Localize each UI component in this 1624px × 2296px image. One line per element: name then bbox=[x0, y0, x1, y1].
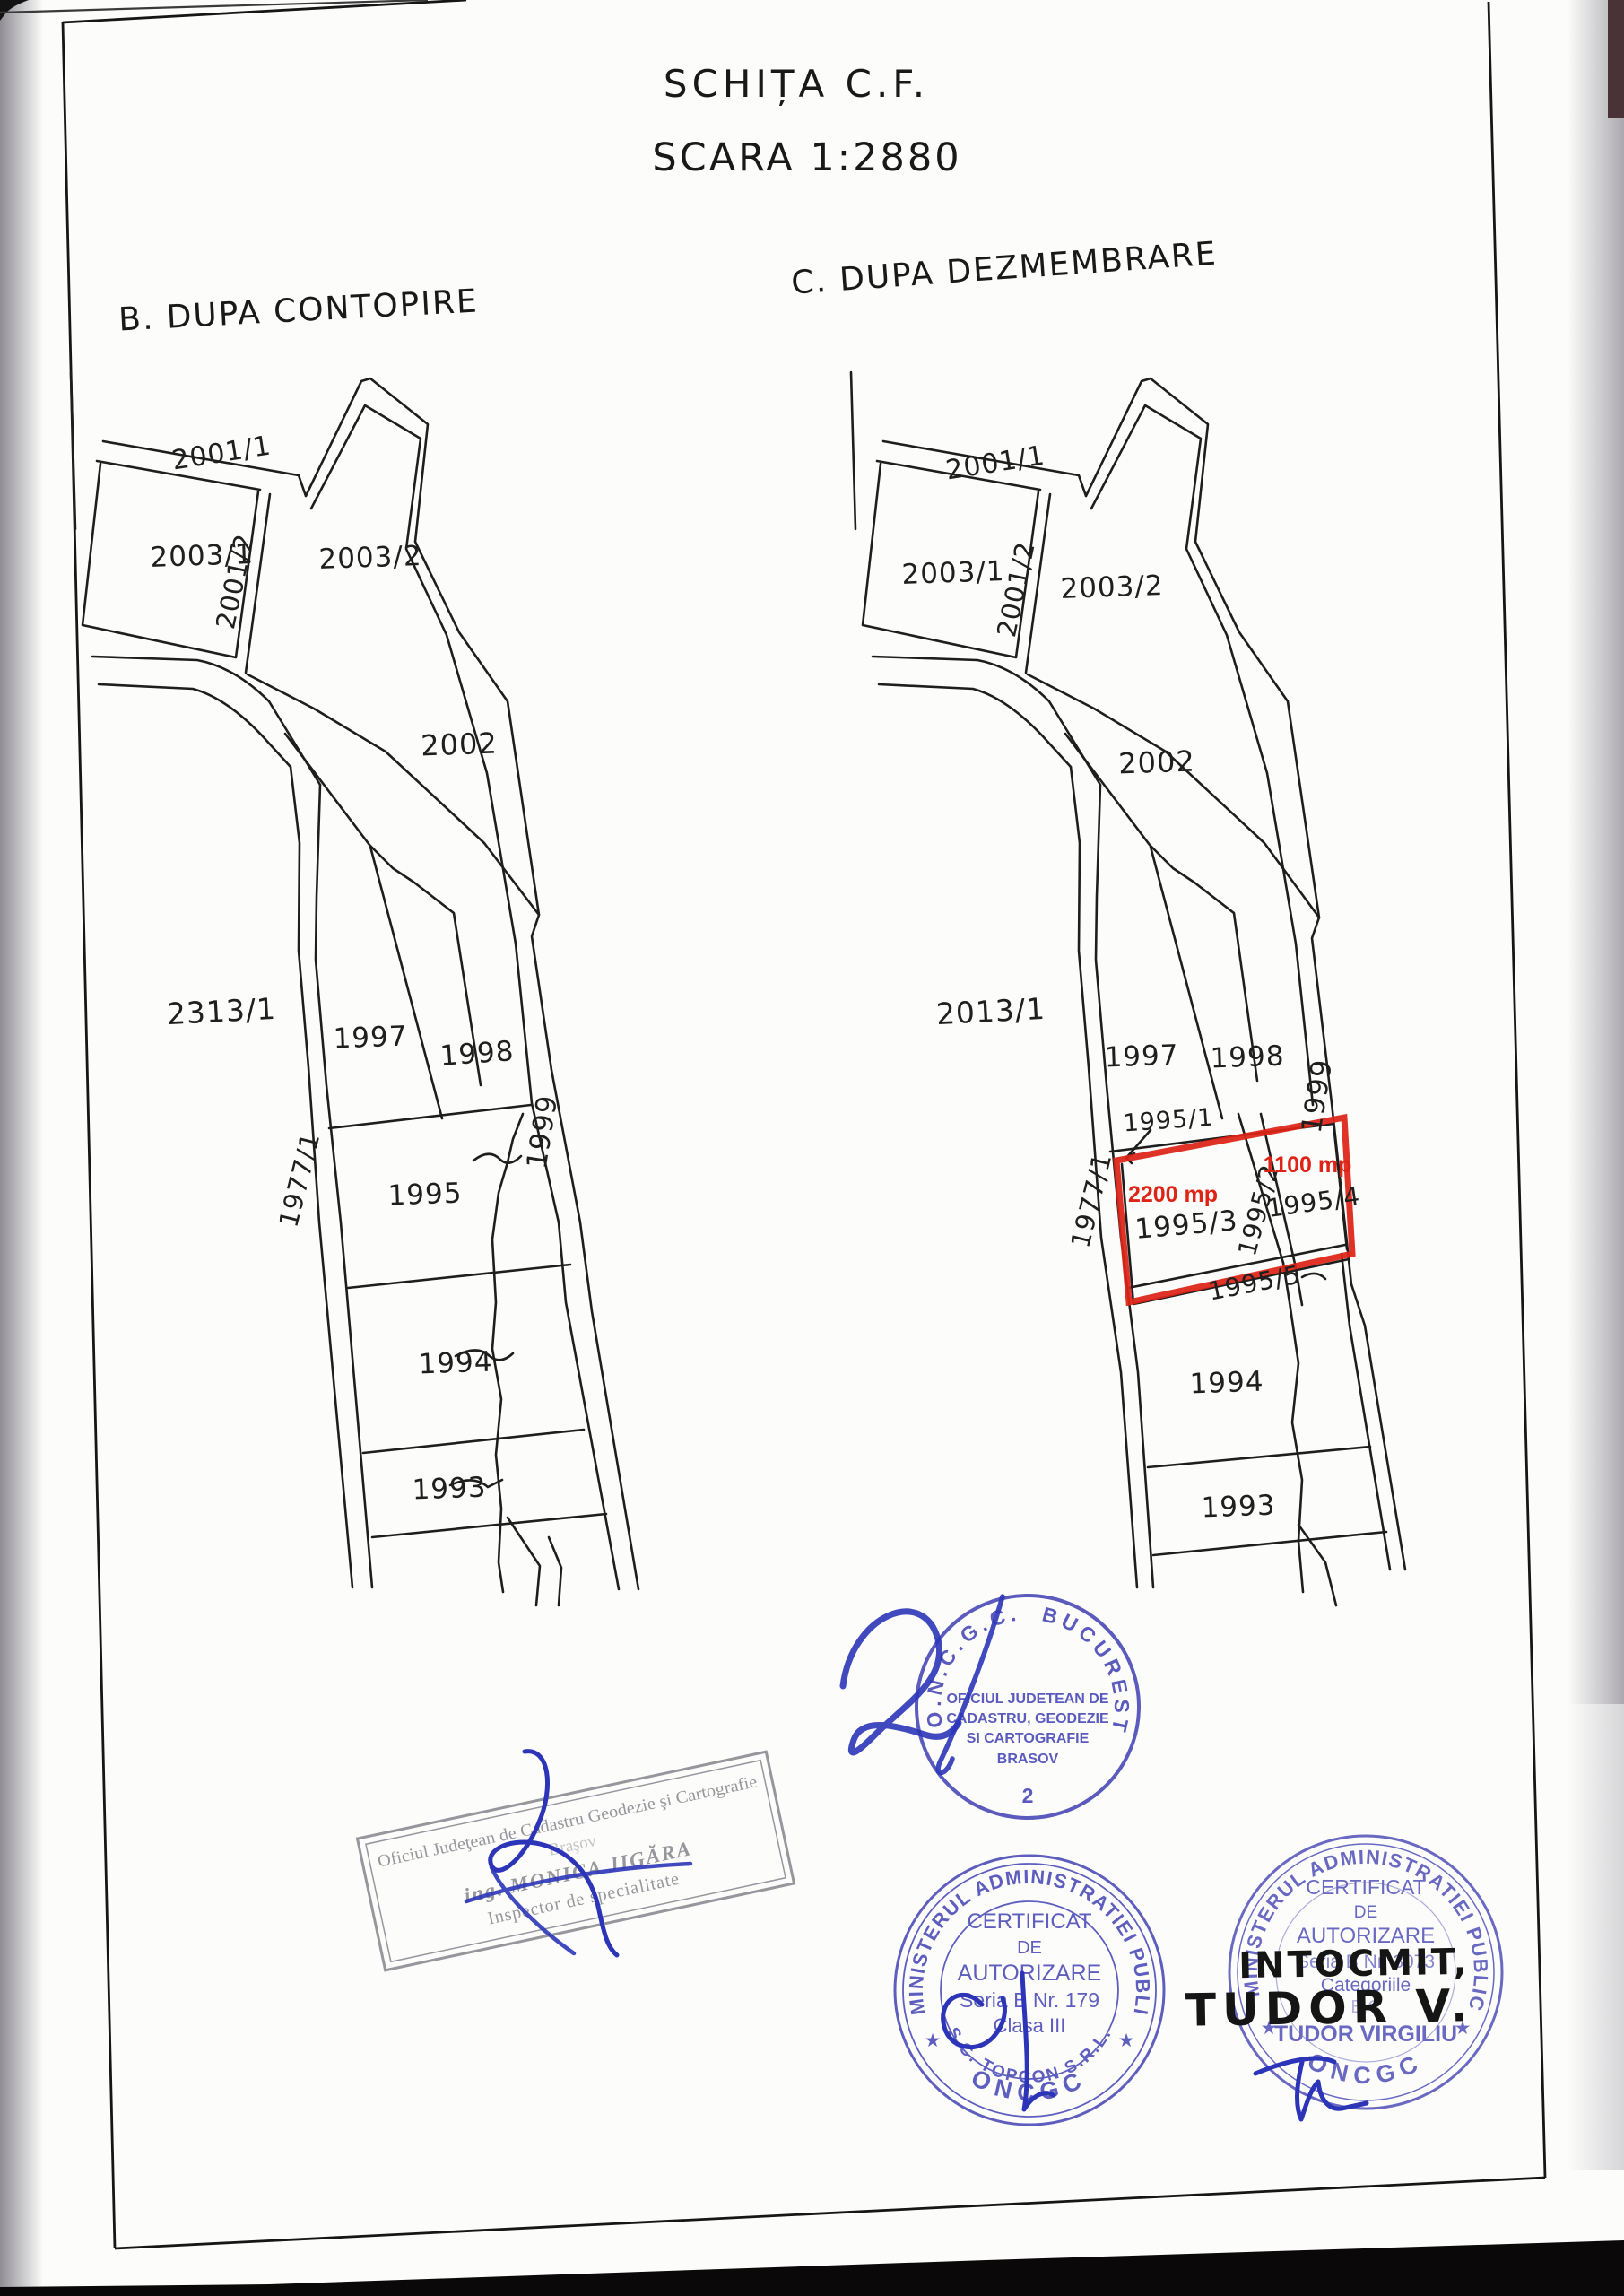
svg-text:ONCGC: ONCGC bbox=[1303, 2048, 1428, 2089]
cadastral-drawing: SCHIȚA C.F. SCARA 1:2880 B. DUPA CONTOPI… bbox=[0, 0, 1624, 2296]
parcel-label: 1994 bbox=[1189, 1366, 1264, 1401]
parcel-label: 2003/1 bbox=[901, 555, 1005, 591]
handwritten-tudor-v: TUDOR V. bbox=[1185, 1979, 1475, 2037]
stamp-number: 2 bbox=[1022, 1784, 1034, 1807]
parcel-label: 1997 bbox=[333, 1021, 408, 1056]
area-annotation-2200: 2200 mp bbox=[1128, 1182, 1218, 1207]
scan-edge-right-low bbox=[1568, 1704, 1624, 2170]
parcel-label: 1998 bbox=[1210, 1040, 1285, 1075]
area-annotation-1100: 1100 mp bbox=[1264, 1152, 1352, 1178]
parcel-label: 2313/1 bbox=[166, 991, 277, 1031]
parcel-label: 1995/1 bbox=[1123, 1104, 1215, 1138]
stamp-line: CERTIFICAT bbox=[967, 1909, 1091, 1934]
scanned-cadastral-sheet: SCHIȚA C.F. SCARA 1:2880 B. DUPA CONTOPI… bbox=[0, 0, 1624, 2296]
parcel-label: 2003/2 bbox=[1060, 570, 1164, 605]
parcel-label: 2013/1 bbox=[935, 991, 1046, 1031]
star-icon: ★ bbox=[925, 2031, 942, 2051]
parcel-label: 1998 bbox=[439, 1035, 515, 1073]
parcel-label: 1995 bbox=[387, 1178, 463, 1213]
stamp-arc-text: ONCGC bbox=[1303, 2048, 1428, 2089]
scan-edge-left bbox=[0, 0, 43, 2296]
stamp-line: DE bbox=[1017, 1938, 1042, 1958]
diagram-c-heading: C. DUPA DEZMEMBRARE bbox=[790, 235, 1219, 301]
scan-corner-dark bbox=[1608, 0, 1624, 118]
stamp-line: SI CARTOGRAFIE bbox=[967, 1731, 1090, 1746]
sheet-title: SCHIȚA C.F. bbox=[664, 62, 929, 106]
diagram-b-heading: B. DUPA CONTOPIRE bbox=[117, 283, 480, 339]
parcel-label: 1994 bbox=[418, 1346, 493, 1381]
parcel-label: 1993 bbox=[412, 1472, 487, 1507]
stamp-line: BRASOV bbox=[997, 1752, 1059, 1767]
parcel-label: 1995/3 bbox=[1133, 1205, 1239, 1246]
diagram-c-parcel-labels: 2001/1 2003/1 2001/2 2003/2 2002 2013/1 … bbox=[901, 439, 1362, 1524]
scan-edge-right bbox=[1568, 0, 1624, 1704]
stamp-line: Braşov bbox=[547, 1831, 599, 1860]
sheet-scale: SCARA 1:2880 bbox=[652, 135, 961, 180]
diagram-b-parcel-labels: 2001/1 2003/1 2001/2 2003/2 2002 2313/1 … bbox=[150, 430, 564, 1506]
stamp-line: DE bbox=[1354, 1903, 1377, 1922]
parcel-label: 2001/1 bbox=[169, 430, 274, 476]
scan-edge-bottom bbox=[0, 2240, 1624, 2296]
parcel-label: 1997 bbox=[1104, 1039, 1179, 1074]
parcel-label: 1977/1 bbox=[1064, 1150, 1117, 1251]
stamp-line: AUTORIZARE bbox=[958, 1961, 1102, 1986]
parcel-label: 2001/1 bbox=[943, 439, 1047, 486]
parcel-label: 1993 bbox=[1201, 1490, 1276, 1525]
stamp-line: CERTIFICAT bbox=[1306, 1875, 1425, 1899]
handwritten-annotation: INTOCMIT, TUDOR V. bbox=[1185, 1942, 1475, 2037]
stamp-line: CADASTRU, GEODEZIE bbox=[946, 1711, 1109, 1726]
parcel-label: 2002 bbox=[421, 726, 499, 763]
star-icon: ★ bbox=[1118, 2031, 1135, 2051]
parcel-label: 2002 bbox=[1118, 744, 1196, 781]
parcel-label: 2003/2 bbox=[318, 540, 422, 576]
